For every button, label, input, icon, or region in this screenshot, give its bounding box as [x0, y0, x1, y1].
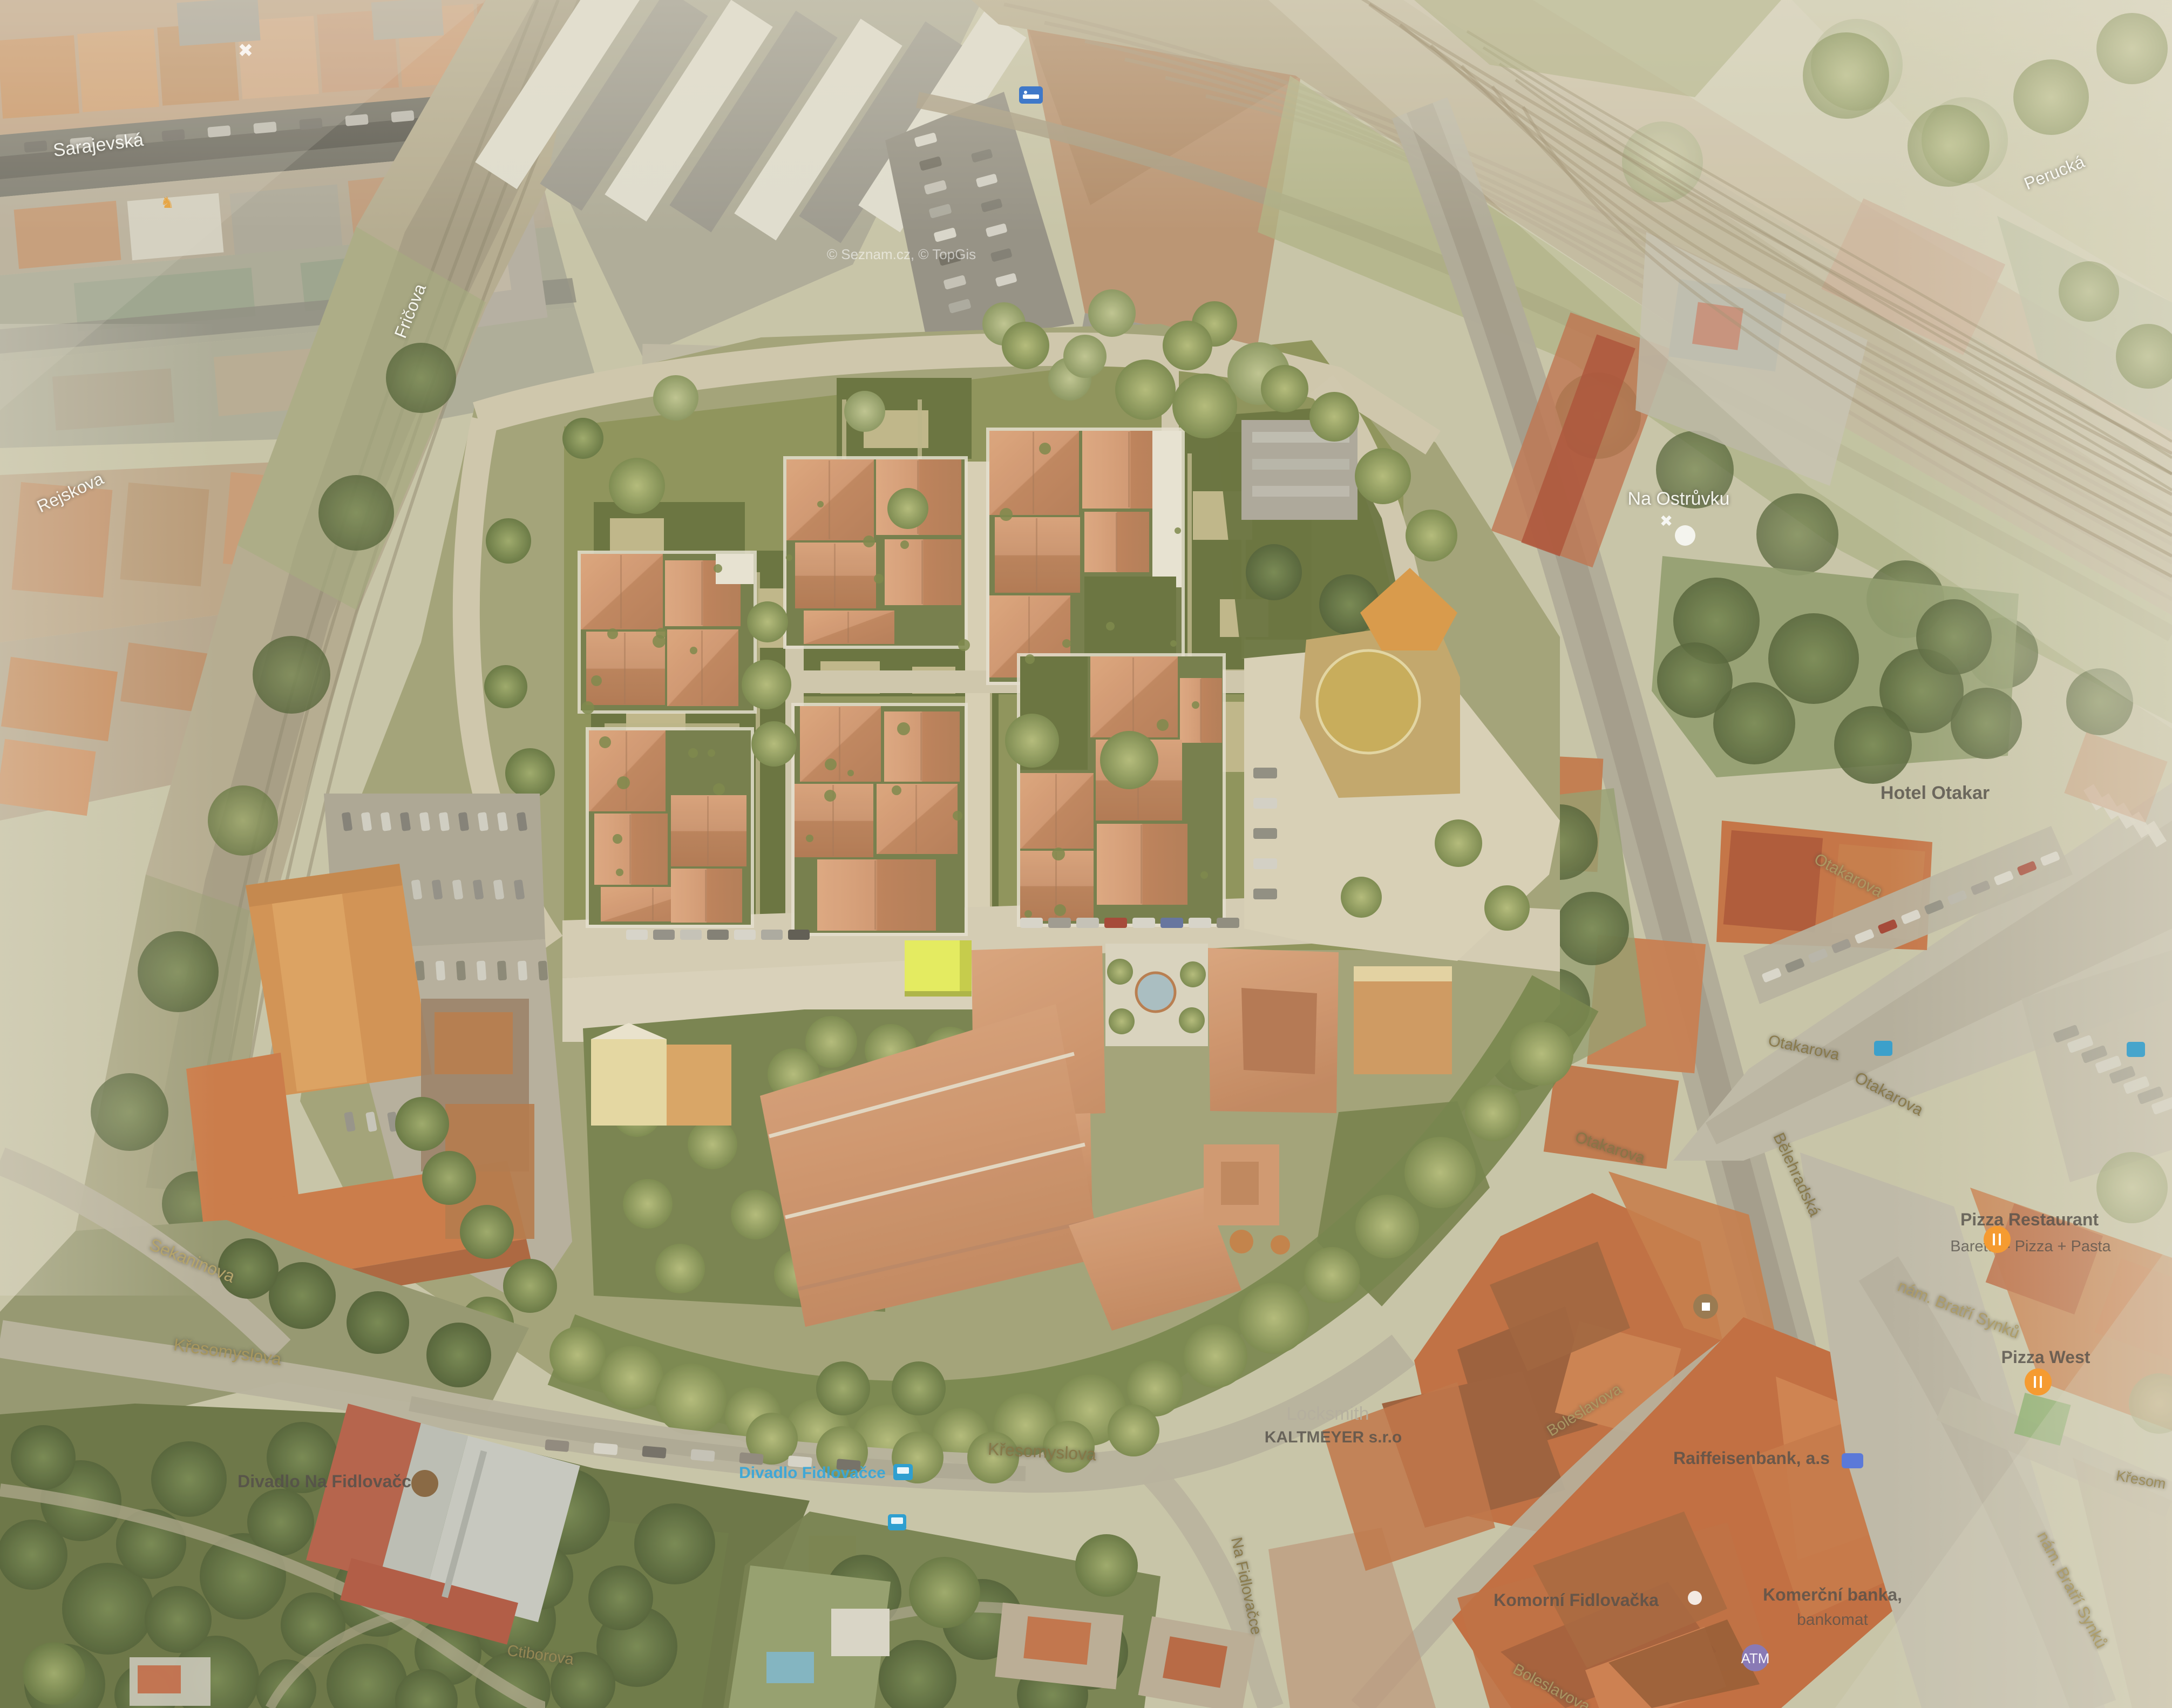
- svg-text:Pizza West: Pizza West: [2001, 1347, 2090, 1367]
- svg-text:Pizza Restaurant: Pizza Restaurant: [1960, 1210, 2099, 1229]
- svg-text:ATM: ATM: [1741, 1650, 1770, 1666]
- svg-text:Locksmith: Locksmith: [1286, 1404, 1369, 1424]
- svg-text:♞: ♞: [160, 194, 174, 212]
- svg-text:Hotel Otakar: Hotel Otakar: [1881, 783, 1990, 803]
- svg-text:Raiffeisenbank, a.s: Raiffeisenbank, a.s: [1673, 1448, 1830, 1468]
- svg-text:© Seznam.cz, © TopGis: © Seznam.cz, © TopGis: [827, 246, 976, 262]
- svg-text:Na Ostrůvku: Na Ostrůvku: [1628, 489, 1730, 509]
- svg-text:Divadlo Fidlovačce: Divadlo Fidlovačce: [739, 1464, 886, 1482]
- svg-text:Komorní Fidlovačka: Komorní Fidlovačka: [1494, 1590, 1659, 1610]
- svg-text:Divadlo Na Fidlovačce: Divadlo Na Fidlovačce: [237, 1472, 421, 1491]
- svg-text:✖: ✖: [238, 40, 254, 61]
- svg-text:bankomat: bankomat: [1797, 1611, 1868, 1629]
- svg-text:✖: ✖: [1660, 513, 1673, 530]
- svg-text:Komerční banka,: Komerční banka,: [1763, 1585, 1902, 1604]
- svg-text:KALTMEYER s.r.o: KALTMEYER s.r.o: [1265, 1428, 1402, 1446]
- svg-text:Baretta - Pizza + Pasta: Baretta - Pizza + Pasta: [1950, 1238, 2111, 1255]
